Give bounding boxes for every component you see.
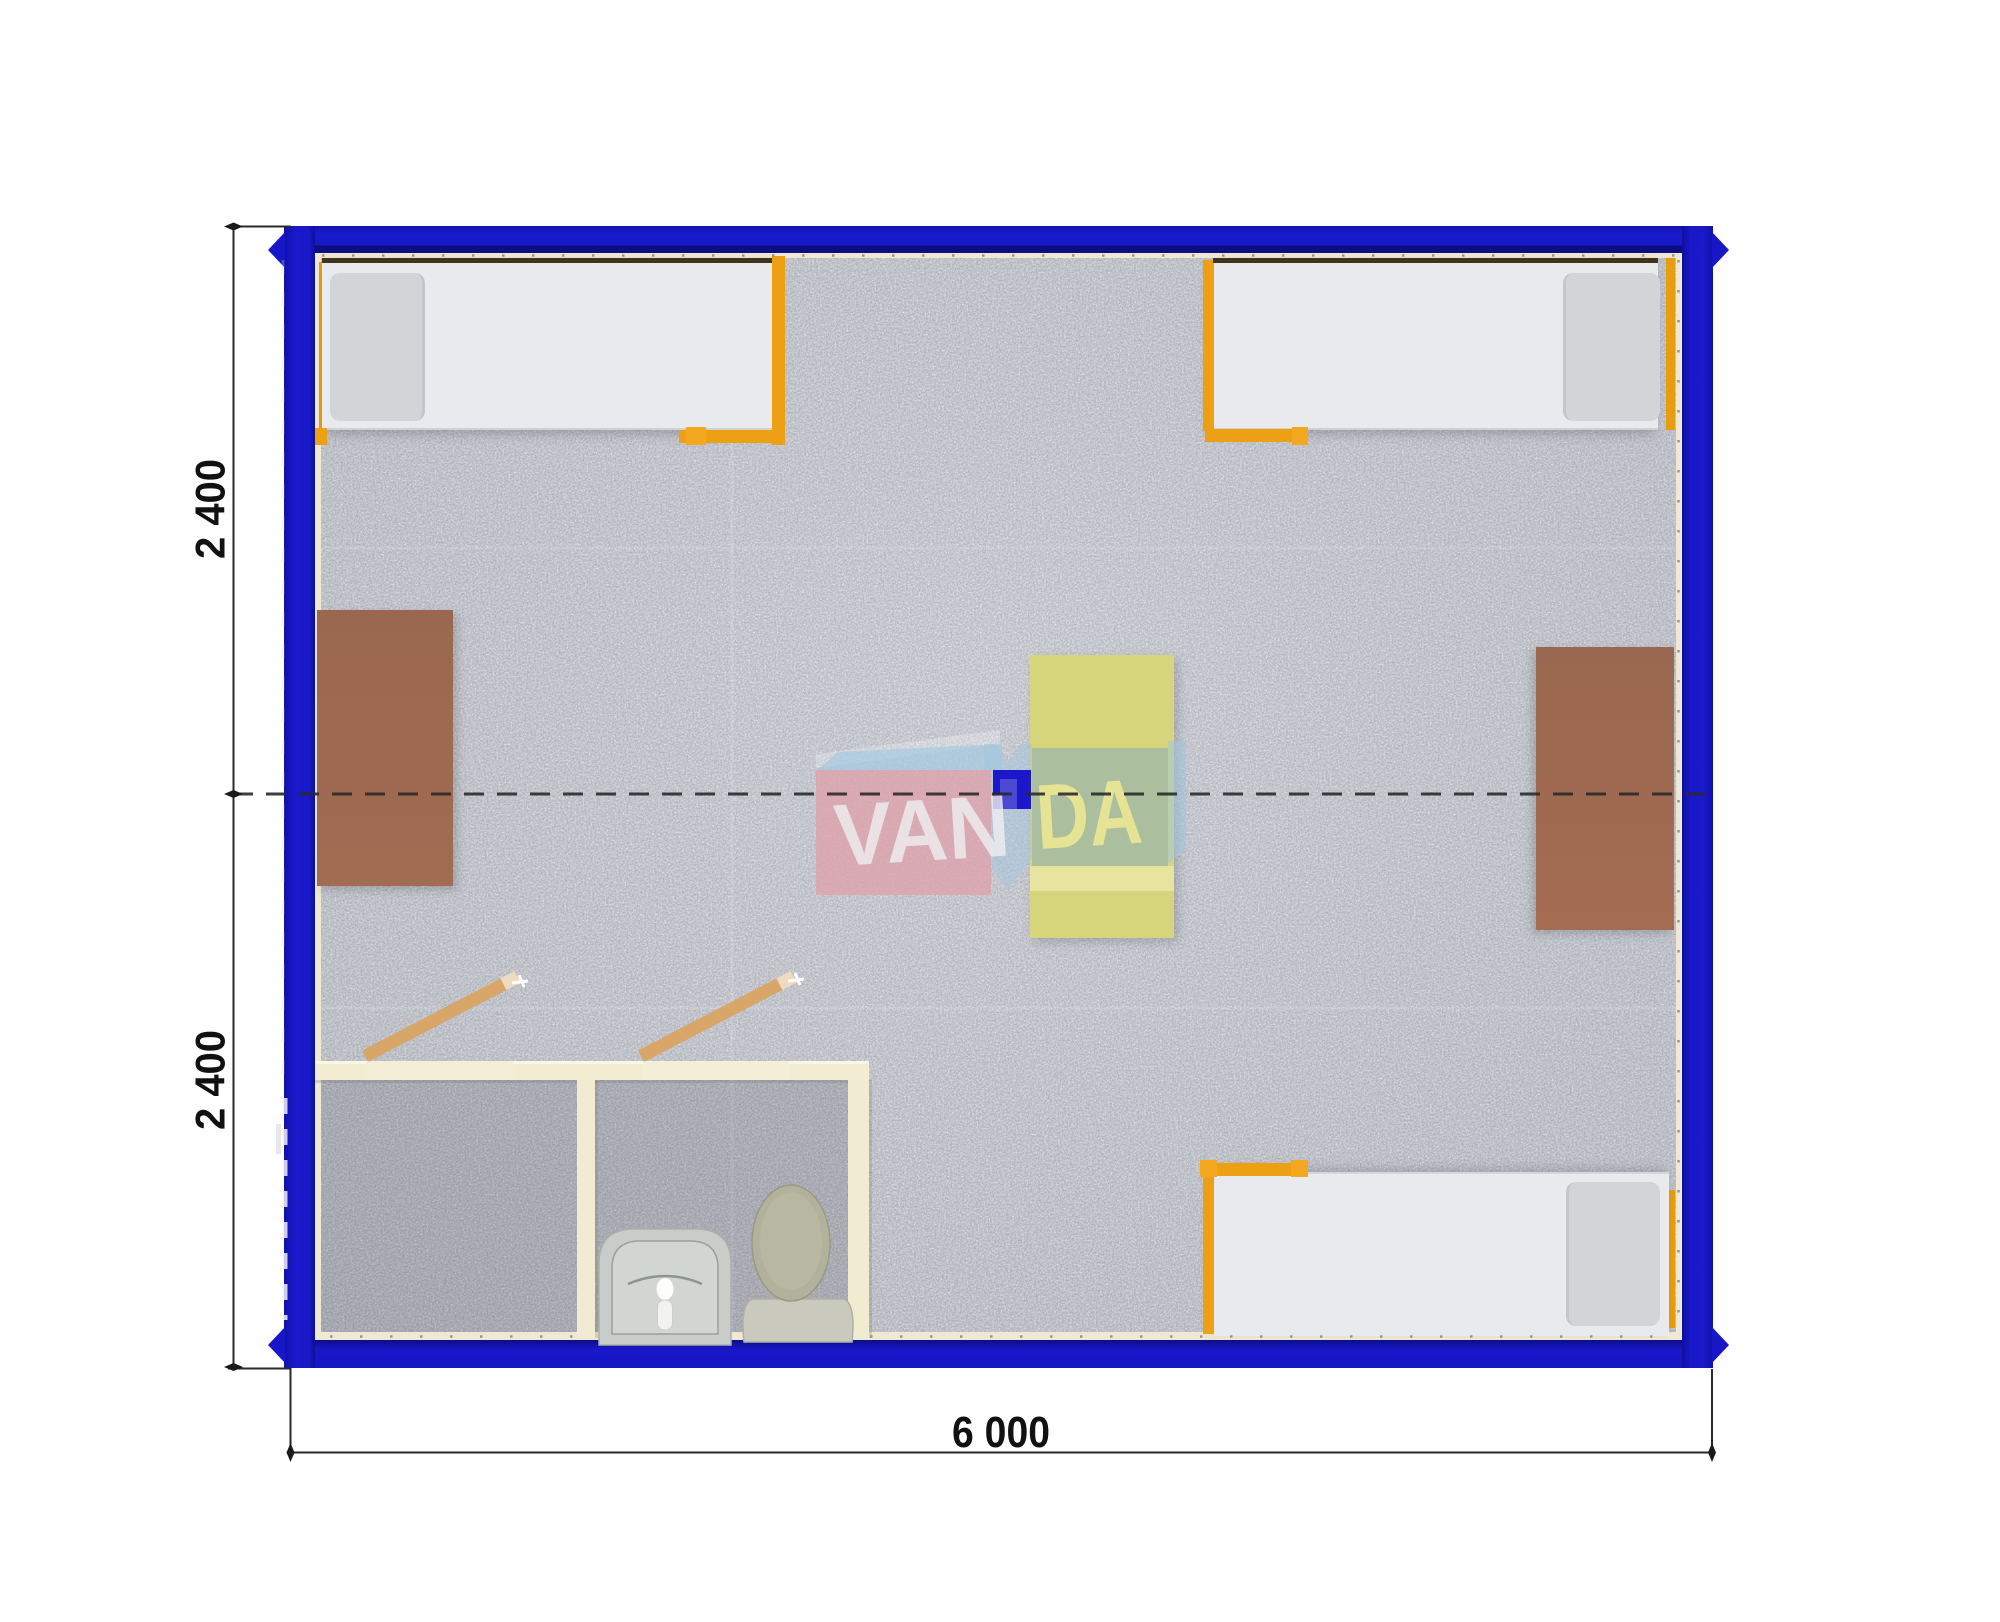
svg-text:DA: DA: [1033, 761, 1145, 869]
svg-text:2 400: 2 400: [187, 1030, 234, 1130]
svg-text:2 400: 2 400: [187, 459, 234, 559]
svg-text:6 000: 6 000: [952, 1408, 1050, 1457]
svg-text:VAN: VAN: [831, 775, 1013, 885]
